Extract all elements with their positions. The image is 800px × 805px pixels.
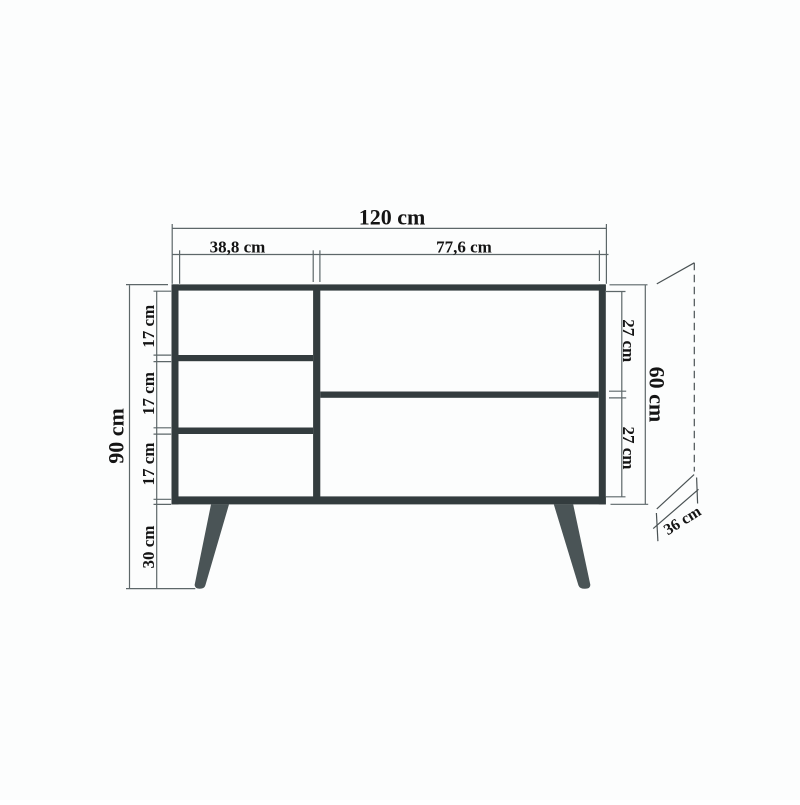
svg-text:27 cm: 27 cm [619, 427, 638, 470]
svg-text:60 cm: 60 cm [645, 367, 670, 423]
svg-text:90 cm: 90 cm [104, 408, 129, 464]
svg-text:120 cm: 120 cm [359, 205, 426, 230]
svg-text:77,6 cm: 77,6 cm [436, 238, 492, 257]
svg-text:17 cm: 17 cm [139, 443, 158, 486]
svg-text:36 cm: 36 cm [661, 503, 705, 539]
svg-text:17 cm: 17 cm [139, 305, 158, 348]
svg-text:30 cm: 30 cm [139, 526, 158, 569]
svg-text:27 cm: 27 cm [619, 319, 638, 362]
svg-text:38,8 cm: 38,8 cm [210, 238, 266, 257]
svg-text:17 cm: 17 cm [139, 372, 158, 415]
